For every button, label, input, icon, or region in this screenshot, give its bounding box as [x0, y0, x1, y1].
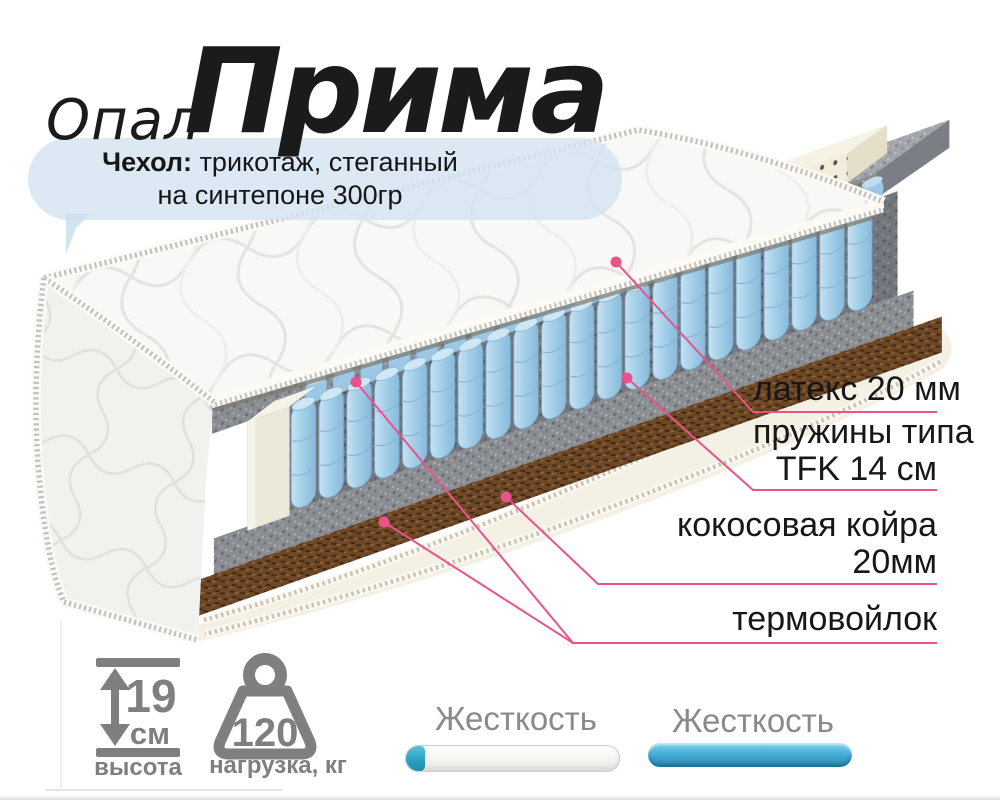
scan-artifact-line — [60, 620, 62, 790]
title-series: Опал — [46, 88, 201, 153]
page-bottom-edge — [0, 795, 1000, 800]
title-model: Прима — [184, 22, 606, 160]
label-thermofelt: термовойлок — [573, 601, 937, 638]
height-arrow-icon: 19 см — [96, 658, 180, 757]
leader-dot — [501, 492, 512, 503]
label-latex: латекс 20 мм — [753, 371, 937, 408]
leader-dot — [622, 373, 633, 384]
height-value: 19 — [125, 670, 176, 722]
label-coir: кокосовая койра 20мм — [598, 507, 937, 581]
hardness-bar-low — [405, 745, 620, 772]
cover-text-line2: на синтепоне 300гр — [60, 179, 500, 212]
load-value: 120 — [232, 711, 299, 755]
product-infographic: 19 см 120 Чехол: трикотаж, стеганный на … — [0, 0, 1000, 800]
leader-dot — [351, 377, 362, 388]
hardness-label-left: Жесткость — [420, 700, 612, 738]
label-springs: пружины типа TFK 14 см — [753, 414, 937, 488]
hardness-bar-low-fill — [406, 746, 425, 771]
product-title: Опал Прима — [0, 0, 1000, 170]
scan-artifact-line — [46, 789, 282, 791]
load-caption: нагрузка, кг — [194, 752, 362, 780]
leader-dot — [611, 257, 622, 268]
weight-icon: 120 — [219, 659, 311, 755]
bubble-tail — [66, 214, 90, 254]
hardness-label-right: Жесткость — [655, 702, 851, 740]
hardness-bar-high — [648, 743, 852, 767]
leader-dot — [379, 517, 390, 528]
height-caption: высота — [84, 754, 192, 782]
height-unit: см — [130, 716, 170, 751]
